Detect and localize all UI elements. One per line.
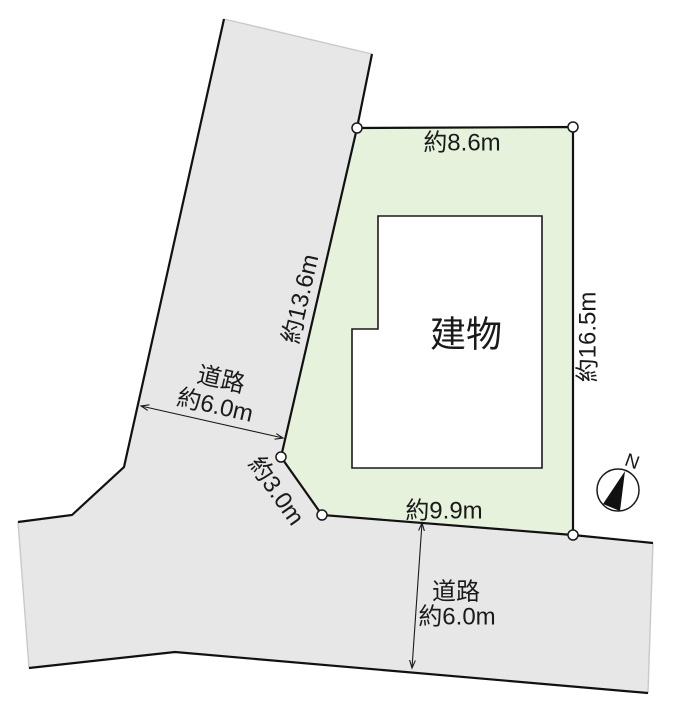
site-plan-diagram: 建物 約8.6m 約16.5m 約13.6m 約9.9m 約3.0m 道路 約6… [0, 0, 685, 725]
compass-needle-icon [603, 471, 625, 511]
building-label: 建物 [430, 314, 502, 355]
plot-vertex-marker [317, 510, 327, 520]
dim-right-label: 約16.5m [575, 292, 602, 383]
road-south-name: 道路 [432, 579, 480, 606]
plot-vertex-marker [568, 122, 578, 132]
plot-vertex-marker [568, 530, 578, 540]
dim-bottom-label: 約9.9m [405, 498, 482, 525]
plot-vertex-marker [352, 123, 362, 133]
road-south-width: 約6.0m [418, 604, 495, 631]
dim-top-label: 約8.6m [423, 130, 500, 157]
north-compass: N [597, 450, 642, 511]
north-label: N [622, 450, 642, 474]
plot-vertex-marker [276, 452, 286, 462]
plan-svg: 建物 約8.6m 約16.5m 約13.6m 約9.9m 約3.0m 道路 約6… [0, 0, 685, 725]
